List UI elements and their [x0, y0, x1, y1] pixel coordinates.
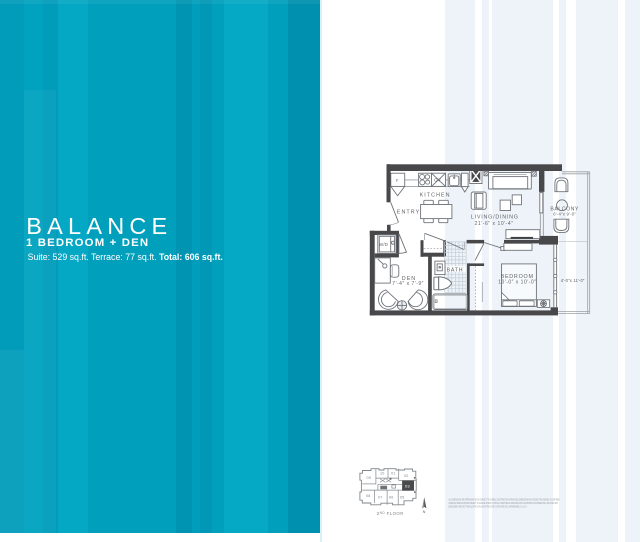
svg-text:ENTRY: ENTRY: [397, 209, 420, 215]
svg-text:OV: OV: [434, 178, 442, 183]
svg-text:BATH: BATH: [447, 267, 464, 273]
svg-text:7′-4″ x 7′-9″: 7′-4″ x 7′-9″: [392, 281, 424, 287]
svg-text:03: 03: [405, 484, 411, 489]
svg-text:BALANCE: BALANCE: [26, 213, 172, 239]
svg-text:ALL DIMENSIONS ARE APPROXIMATE: ALL DIMENSIONS ARE APPROXIMATE AND SUBJE…: [449, 498, 561, 502]
svg-text:N: N: [423, 510, 426, 514]
svg-text:10: 10: [380, 472, 385, 476]
svg-text:05: 05: [400, 496, 405, 500]
svg-text:4′-0″x 11′-0″: 4′-0″x 11′-0″: [561, 278, 585, 283]
svg-text:W/D: W/D: [379, 242, 388, 247]
svg-text:01: 01: [391, 472, 396, 476]
svg-text:KITCHEN: KITCHEN: [420, 192, 451, 198]
svg-text:06: 06: [389, 496, 394, 500]
svg-text:LIVING/DINING: LIVING/DINING: [471, 214, 519, 220]
svg-text:10′-0″ x 10′-0″: 10′-0″ x 10′-0″: [498, 280, 536, 286]
svg-text:07: 07: [378, 496, 383, 500]
svg-text:F: F: [396, 178, 399, 183]
svg-text:08: 08: [366, 494, 371, 498]
svg-text:21′-6″ x 10′-4″: 21′-6″ x 10′-4″: [475, 221, 514, 227]
svg-text:Suite: 529 sq.ft. Terrace: 77: Suite: 529 sq.ft. Terrace: 77 sq.ft. Tot…: [28, 252, 223, 262]
svg-text:NECESSARILY REFLECT THE ELECTR: NECESSARILY REFLECT THE ELECTRICAL PLAN …: [449, 505, 528, 509]
svg-text:02: 02: [404, 474, 409, 478]
svg-text:1 BEDROOM + DEN: 1 BEDROOM + DEN: [26, 237, 149, 249]
svg-text:6′-4″x 9′-0″: 6′-4″x 9′-0″: [553, 212, 576, 217]
svg-text:09: 09: [367, 476, 372, 480]
svg-text:SIZES AND SPECIFICATIONS SUBJE: SIZES AND SPECIFICATIONS SUBJECT TO CHAN…: [449, 501, 559, 505]
